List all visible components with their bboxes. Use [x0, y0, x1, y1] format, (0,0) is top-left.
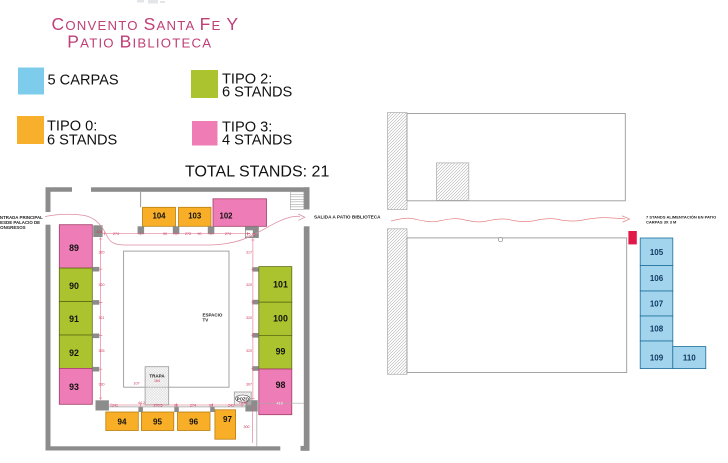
svg-text:274: 274: [190, 404, 196, 408]
svg-text:SALIDA A PATIO BIBLIOTECA: SALIDA A PATIO BIBLIOTECA: [314, 214, 381, 219]
svg-text:406: 406: [97, 230, 103, 234]
svg-text:241: 241: [112, 404, 118, 408]
svg-text:410: 410: [277, 402, 283, 406]
svg-text:273: 273: [185, 232, 191, 236]
svg-text:ESPACIO: ESPACIO: [203, 312, 223, 317]
svg-text:274: 274: [113, 232, 119, 236]
svg-text:320: 320: [99, 251, 105, 255]
svg-text:110: 110: [683, 354, 696, 363]
svg-text:107: 107: [134, 382, 140, 386]
svg-text:99: 99: [276, 347, 286, 357]
svg-text:321: 321: [99, 316, 105, 320]
svg-text:96: 96: [189, 418, 198, 427]
svg-text:TV: TV: [203, 318, 209, 323]
svg-text:104: 104: [152, 212, 166, 221]
svg-text:89: 89: [69, 243, 79, 253]
svg-text:95: 95: [153, 418, 162, 427]
svg-text:101: 101: [273, 280, 288, 290]
svg-text:6 STANDS: 6 STANDS: [47, 133, 118, 149]
svg-text:108: 108: [650, 325, 664, 334]
svg-text:92: 92: [69, 348, 79, 358]
svg-text:44.2: 44.2: [138, 401, 145, 405]
svg-text:97: 97: [223, 415, 232, 424]
svg-text:164: 164: [154, 379, 160, 383]
svg-text:320: 320: [246, 349, 252, 353]
svg-text:94: 94: [118, 418, 127, 427]
svg-text:CONGRESOS: CONGRESOS: [0, 225, 26, 230]
svg-text:5 CARPAS: 5 CARPAS: [48, 73, 119, 89]
svg-text:4 STANDS: 4 STANDS: [222, 133, 293, 149]
svg-text:320: 320: [99, 283, 105, 287]
svg-text:320: 320: [246, 283, 252, 287]
svg-text:107: 107: [650, 300, 664, 309]
svg-text:75.88: 75.88: [239, 401, 248, 405]
svg-text:325: 325: [99, 349, 105, 353]
svg-text:90: 90: [209, 404, 213, 408]
svg-text:102: 102: [219, 211, 233, 220]
svg-text:98: 98: [276, 380, 286, 390]
svg-text:CARPAS 3X 3 M: CARPAS 3X 3 M: [646, 219, 677, 224]
svg-text:90: 90: [174, 404, 178, 408]
svg-text:330: 330: [99, 383, 105, 387]
svg-text:90: 90: [198, 232, 202, 236]
svg-text:109: 109: [650, 354, 664, 363]
svg-text:320: 320: [246, 316, 252, 320]
svg-text:300: 300: [244, 425, 250, 429]
svg-text:307: 307: [246, 383, 252, 387]
svg-text:241: 241: [228, 404, 234, 408]
svg-text:6 STANDS: 6 STANDS: [222, 85, 293, 101]
svg-text:90: 90: [163, 232, 167, 236]
svg-text:317: 317: [246, 251, 252, 255]
svg-text:93: 93: [69, 382, 79, 392]
svg-text:TRAPA: TRAPA: [149, 373, 165, 378]
svg-text:90: 90: [69, 281, 79, 291]
svg-text:270.5: 270.5: [154, 404, 163, 408]
svg-text:103: 103: [188, 212, 202, 221]
svg-text:105: 105: [650, 248, 664, 257]
svg-text:91: 91: [69, 314, 79, 324]
svg-text:TOTAL STANDS: 21: TOTAL STANDS: 21: [185, 164, 329, 181]
svg-text:274: 274: [225, 232, 231, 236]
svg-text:100: 100: [273, 314, 288, 324]
svg-text:106: 106: [650, 274, 664, 283]
